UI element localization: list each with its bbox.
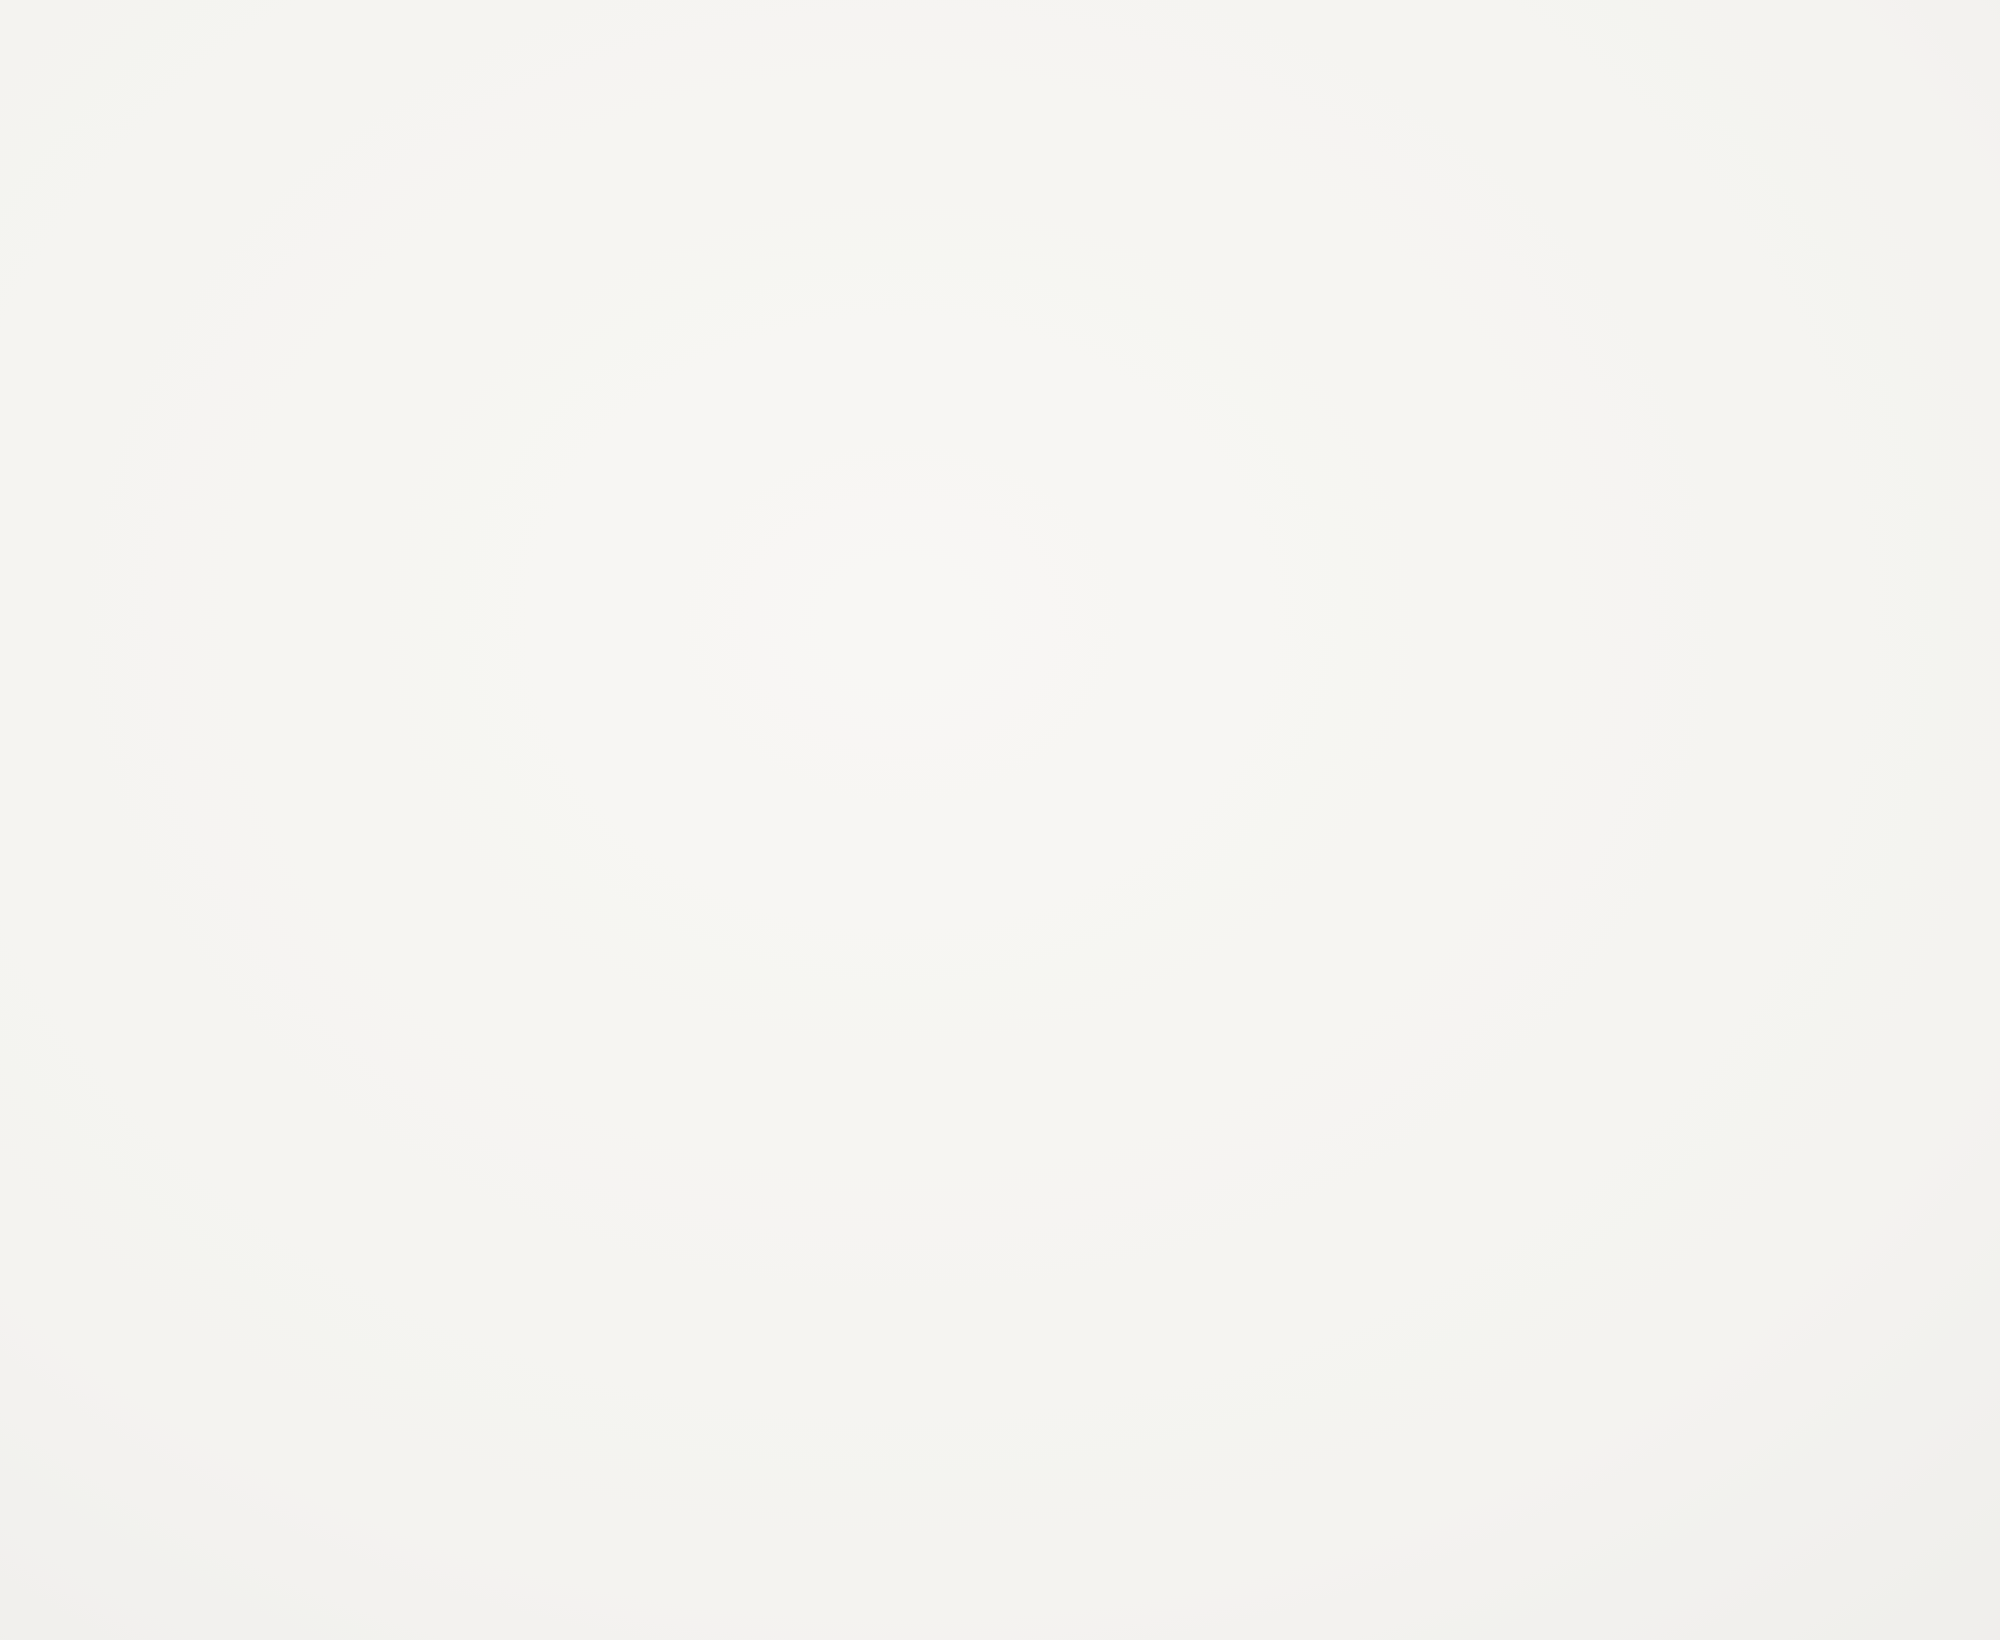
paper-background bbox=[0, 0, 2000, 1640]
elevation-sketch bbox=[0, 0, 2000, 1640]
sketch-page bbox=[0, 0, 2000, 1640]
